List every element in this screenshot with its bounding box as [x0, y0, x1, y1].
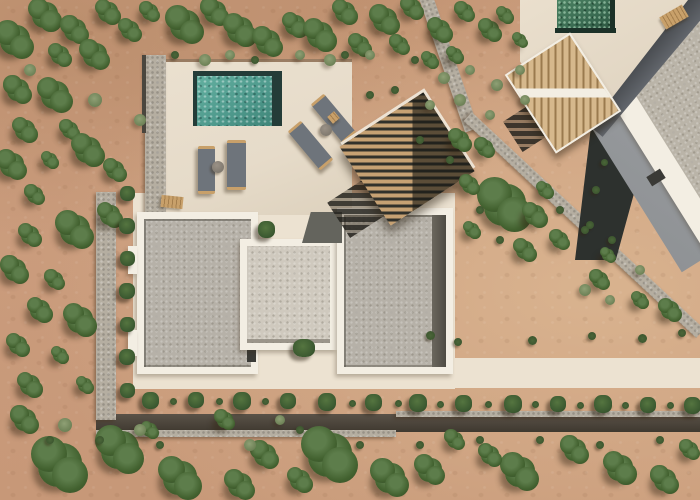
tree [15, 120, 35, 140]
plant [550, 396, 566, 412]
tuft [581, 226, 589, 234]
side-table-1 [212, 161, 224, 173]
tree [481, 446, 499, 464]
shrub [134, 424, 146, 436]
tuft [454, 338, 462, 346]
plant [120, 251, 135, 266]
tuft [556, 206, 564, 214]
tree [373, 8, 397, 32]
shrub [58, 418, 72, 432]
neighbor-pool-rim-right [610, 0, 615, 32]
shrub [491, 79, 503, 91]
side-table-2 [320, 124, 332, 136]
tree [38, 443, 82, 487]
shrub [579, 284, 591, 296]
plant [120, 383, 135, 398]
tree [47, 272, 63, 288]
tree [285, 15, 305, 35]
tree [375, 463, 405, 493]
tree [308, 433, 352, 477]
aerial-photo-scene [0, 0, 700, 500]
tree [78, 378, 92, 392]
tuft [592, 186, 600, 194]
tree [0, 153, 24, 177]
tree [538, 183, 552, 197]
perimeter-wall-bottom-light-right [396, 411, 700, 417]
tuft [262, 398, 269, 405]
tree [481, 21, 499, 39]
plant [318, 393, 336, 411]
tree [7, 79, 29, 101]
neighbor-pool-rim-bottom [555, 28, 616, 33]
tree [227, 17, 253, 43]
tree [654, 469, 676, 491]
tuft [667, 402, 674, 409]
tuft [156, 441, 164, 449]
tree [43, 153, 57, 167]
tuft [46, 436, 54, 444]
plant [142, 392, 159, 409]
tuft [446, 156, 454, 164]
tuft [536, 436, 544, 444]
tree [9, 336, 27, 354]
plant [594, 395, 612, 413]
tuft [366, 91, 374, 99]
pool-rim-left [193, 71, 197, 126]
plant [120, 317, 135, 332]
tuft [476, 206, 484, 214]
tree [465, 223, 479, 237]
scene-objects-layer [0, 0, 700, 500]
tuft [96, 436, 104, 444]
plant [119, 283, 135, 299]
tuft [296, 426, 304, 434]
tree [682, 442, 698, 458]
tuft [356, 441, 364, 449]
plant [684, 397, 700, 414]
tree [64, 19, 86, 41]
shrub [425, 100, 435, 110]
tree [41, 81, 69, 109]
tree [75, 137, 101, 163]
tree [564, 439, 586, 461]
shrub [134, 114, 146, 126]
shrub [225, 50, 235, 60]
tuft [622, 402, 629, 409]
tuft [588, 332, 596, 340]
tree [51, 46, 69, 64]
tuft [638, 334, 647, 343]
tree [633, 293, 647, 307]
tree [392, 37, 408, 53]
tuft [391, 86, 399, 94]
tuft [596, 441, 604, 449]
tree [60, 215, 90, 245]
tuft [678, 329, 686, 337]
shrub [515, 65, 525, 75]
tree [21, 226, 39, 244]
tuft [411, 56, 419, 64]
tree [106, 161, 124, 179]
tree [217, 412, 233, 428]
shrub [324, 54, 336, 66]
tuft [496, 236, 504, 244]
tree [516, 241, 534, 259]
tuft [395, 400, 402, 407]
shrub [275, 415, 285, 425]
shrub [295, 50, 305, 60]
tree [525, 205, 545, 225]
tree [418, 458, 442, 482]
tree [423, 53, 437, 67]
tuft [216, 398, 223, 405]
plant [365, 394, 382, 411]
tree [335, 2, 355, 22]
tree [27, 187, 43, 203]
tree [661, 301, 679, 319]
tuft [577, 402, 584, 409]
tree [484, 184, 526, 226]
tree [307, 22, 333, 48]
tree [20, 375, 40, 395]
tree [254, 444, 276, 466]
tuft [416, 136, 424, 144]
tuft [528, 336, 537, 345]
neighbor-pool [557, 0, 612, 30]
tree [121, 21, 139, 39]
shrub [438, 72, 450, 84]
perimeter-wall-terrace [145, 55, 166, 215]
tuft [608, 236, 616, 244]
tuft [437, 401, 444, 408]
tuft [341, 51, 349, 59]
tree [170, 10, 200, 40]
shrub [88, 93, 102, 107]
plant [188, 392, 204, 408]
tree [498, 8, 512, 22]
plant [119, 349, 135, 365]
plant [640, 397, 656, 413]
tuft [170, 398, 177, 405]
plant [233, 392, 251, 410]
tree [83, 43, 107, 67]
roof-right-gravel [344, 215, 446, 367]
plant [280, 393, 296, 409]
tree [505, 457, 535, 487]
tree [101, 431, 139, 469]
tree [462, 177, 478, 193]
tuft [171, 51, 179, 59]
shrub [635, 265, 645, 275]
tree [607, 455, 633, 481]
tree [163, 461, 197, 495]
tree [0, 25, 30, 55]
tuft [485, 401, 492, 408]
plant [120, 186, 135, 201]
shrub [365, 50, 375, 60]
tree [256, 30, 280, 54]
tuft [476, 436, 484, 444]
tree [430, 20, 450, 40]
tuft [349, 400, 356, 407]
shrub [485, 110, 495, 120]
tree [514, 34, 526, 46]
tree [602, 249, 614, 261]
tree [67, 307, 93, 333]
tree [30, 300, 50, 320]
plant [455, 395, 472, 412]
tree [53, 348, 67, 362]
tree [98, 2, 118, 22]
courtyard-plant [293, 339, 315, 357]
tree [290, 470, 310, 490]
shrub [605, 295, 615, 305]
plant [409, 394, 427, 412]
tree [457, 4, 473, 20]
tuft [251, 56, 259, 64]
pool-rim-right [272, 71, 282, 126]
sun-lounger-2 [227, 140, 246, 190]
tuft [426, 331, 435, 340]
tree [142, 4, 158, 20]
tree [451, 131, 469, 149]
shrub [465, 65, 475, 75]
shrub [520, 95, 530, 105]
tuft [416, 441, 424, 449]
tree [477, 140, 493, 156]
tuft [656, 436, 664, 444]
shrub [199, 54, 211, 66]
tuft [601, 159, 608, 166]
plant [119, 218, 135, 234]
terrace-planter [258, 221, 275, 238]
terrace-bench [160, 195, 183, 209]
roof-left-gravel [144, 219, 251, 367]
tuft [532, 401, 539, 408]
tree [100, 205, 120, 225]
tree [14, 409, 36, 431]
shrub [454, 94, 466, 106]
tree [403, 0, 421, 17]
tree [4, 259, 26, 281]
tree [32, 2, 58, 28]
roof-middle-gravel [247, 246, 330, 343]
shrub [244, 439, 256, 451]
shrub [24, 64, 36, 76]
plant [504, 395, 522, 413]
pool-rim-top [196, 71, 280, 76]
plunge-pool [196, 74, 280, 126]
roof-right-dark-strip [432, 215, 446, 367]
tree [228, 473, 252, 497]
tree [552, 232, 568, 248]
tree [447, 432, 463, 448]
tree [592, 272, 608, 288]
tree [448, 48, 462, 62]
